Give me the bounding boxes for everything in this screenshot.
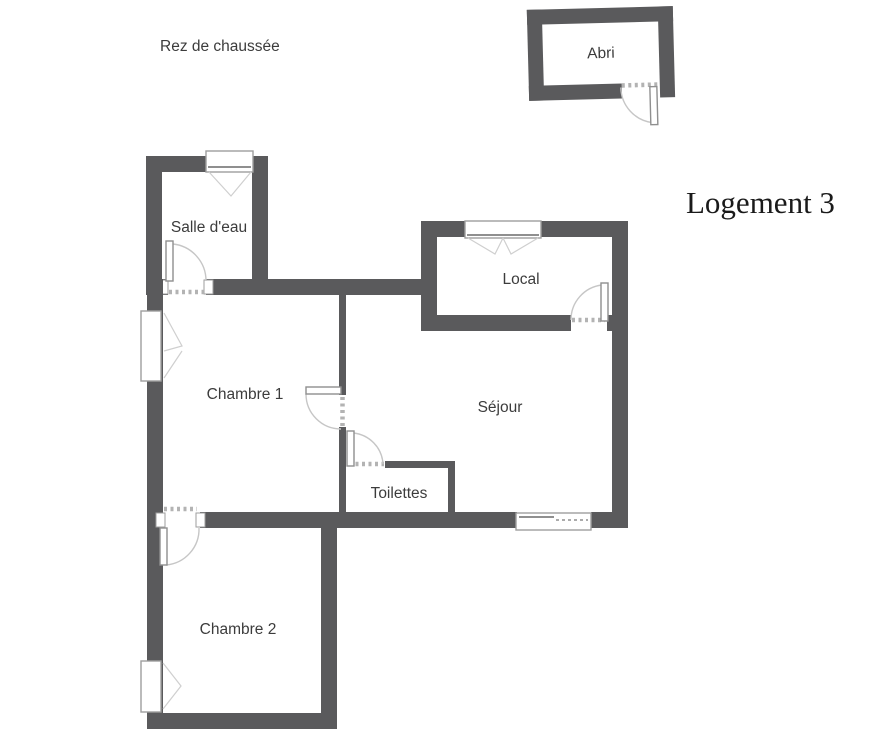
floor-plan-drawing: Rez de chaussée Logement 3 Abri Salle d'… xyxy=(0,0,895,750)
room-label-salle-deau: Salle d'eau xyxy=(171,219,247,236)
local-window-casement xyxy=(468,238,538,254)
chambre2-window xyxy=(141,661,161,712)
chambre1-sejour-wall xyxy=(339,295,346,395)
local-wall-left xyxy=(421,221,437,331)
salle-deau-window xyxy=(206,151,253,172)
toilettes-door-leaf xyxy=(347,431,354,466)
chambre2-wall-right xyxy=(321,512,337,729)
floor-label: Rez de chaussée xyxy=(160,38,280,55)
chambre2-door-swing xyxy=(166,528,199,565)
chambre1-door-swing xyxy=(306,394,341,429)
chambre1-window xyxy=(141,311,161,381)
sejour-window xyxy=(516,513,591,530)
room-label-chambre1: Chambre 1 xyxy=(207,386,284,403)
chambre2-door-leaf xyxy=(160,528,167,565)
chambre1-door-leaf xyxy=(306,387,341,394)
local-door-leaf xyxy=(601,283,608,321)
plan-title: Logement 3 xyxy=(686,185,835,220)
chambre2-window-casement xyxy=(163,663,181,709)
salle-deau-wall-right xyxy=(252,156,268,294)
abri-door-threshold xyxy=(622,85,658,86)
toilettes-door-swing xyxy=(353,433,383,464)
salle-deau-window-casement xyxy=(209,172,251,196)
room-label-abri: Abri xyxy=(587,45,615,63)
chambre1-window-casement xyxy=(164,313,182,378)
abri-wall-bottom xyxy=(529,83,622,100)
chambre2-wall-bottom xyxy=(147,713,337,729)
north-wall-segment xyxy=(206,279,437,295)
toilettes-wall-top xyxy=(385,461,455,468)
south-wall-segment xyxy=(200,512,517,528)
local-door-swing xyxy=(571,285,602,320)
abri-door-swing xyxy=(621,87,653,124)
room-label-sejour: Séjour xyxy=(478,399,523,416)
salle-deau-door-leaf xyxy=(166,241,173,281)
chambre1-sejour-wall xyxy=(339,427,346,512)
local-wall-bottom xyxy=(421,315,571,331)
room-label-chambre2: Chambre 2 xyxy=(200,621,277,638)
room-label-toilettes: Toilettes xyxy=(371,485,428,502)
toilettes-wall-right xyxy=(448,461,455,512)
room-abri: Abri xyxy=(527,6,676,128)
room-label-local: Local xyxy=(502,271,539,288)
east-wall xyxy=(612,221,628,528)
floor-plan-page: Rez de chaussée Logement 3 Abri Salle d'… xyxy=(0,0,895,750)
abri-wall-top xyxy=(527,6,673,25)
salle-deau-door-swing xyxy=(173,244,206,281)
salle-deau-wall-left xyxy=(146,156,162,283)
abri-wall-right xyxy=(658,6,675,97)
abri-door-leaf xyxy=(650,87,658,125)
south-wall-segment xyxy=(591,512,628,528)
chambre2-door-jamb xyxy=(196,513,205,527)
salle-deau-door-jamb xyxy=(204,280,213,294)
chambre2-door-jamb xyxy=(156,513,165,527)
